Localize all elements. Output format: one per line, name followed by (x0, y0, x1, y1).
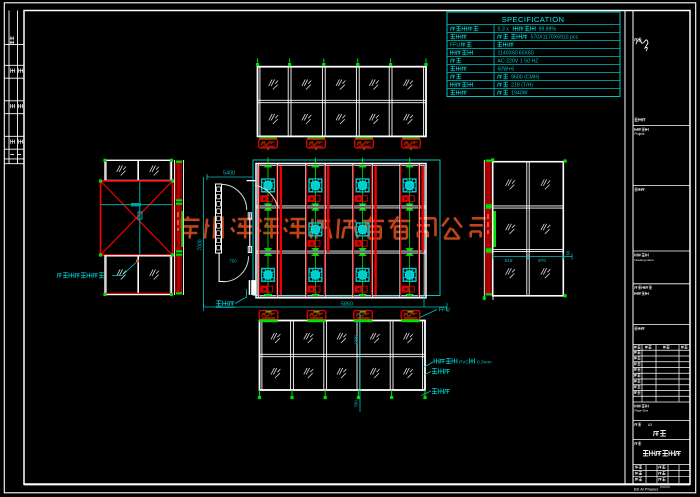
svg-text:BS Al Phases: BS Al Phases (634, 487, 658, 492)
svg-text:9600 (CMH): 9600 (CMH) (511, 75, 540, 81)
svg-text:Page Size: Page Size (635, 409, 649, 413)
svg-text:FFU: FFU (450, 43, 460, 49)
svg-text:SPECIFICATION: SPECIFICATION (502, 15, 565, 24)
svg-text:700: 700 (354, 400, 359, 408)
svg-text:1140X60: 1140X60 (498, 51, 518, 57)
svg-text:PVC: PVC (459, 360, 469, 366)
svg-text:1940W: 1940W (511, 91, 528, 97)
svg-text:Drawing name: Drawing name (635, 258, 655, 262)
svg-text:Project: Project (635, 132, 645, 136)
svg-text:1200: 1200 (354, 335, 359, 345)
svg-text:0.3mm: 0.3mm (477, 360, 492, 366)
svg-text:7000: 7000 (198, 239, 204, 250)
svg-text:5850: 5850 (341, 302, 353, 308)
svg-text:69: 69 (566, 250, 571, 255)
svg-text:970: 970 (538, 258, 546, 264)
svg-text:570X1170X69: 570X1170X69 (531, 35, 564, 41)
svg-text:FFU: FFU (439, 308, 450, 314)
svg-text:918: 918 (504, 258, 512, 264)
svg-text:AC 220V 1: AC 220V 1 (498, 59, 523, 65)
svg-text:750: 750 (229, 259, 237, 264)
svg-text:5400: 5400 (223, 171, 235, 177)
svg-text:50 HZ: 50 HZ (524, 59, 538, 65)
svg-text:0.3 x: 0.3 x (498, 27, 510, 33)
svg-text:99.99%: 99.99% (538, 27, 556, 33)
svg-text:218 (T/H): 218 (T/H) (511, 83, 533, 89)
svg-text:60W+6: 60W+6 (498, 67, 515, 73)
svg-text:60X60: 60X60 (519, 51, 534, 57)
svg-text:A3: A3 (648, 423, 652, 427)
svg-text:10 pcs: 10 pcs (563, 35, 579, 41)
